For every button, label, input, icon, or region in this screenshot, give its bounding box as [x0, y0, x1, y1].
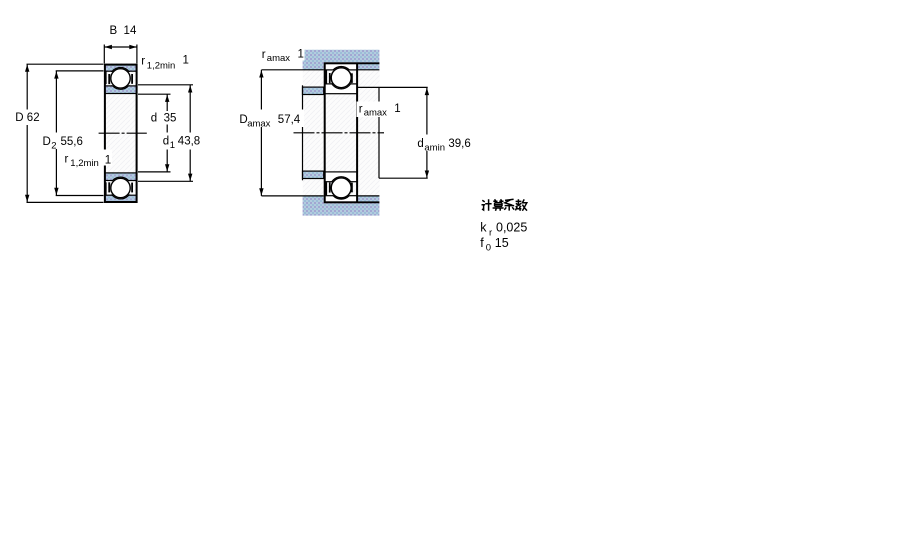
svg-text:D 62: D 62: [15, 112, 39, 124]
svg-text:15: 15: [495, 236, 509, 250]
svg-text:amax: amax: [267, 53, 290, 64]
svg-text:f: f: [480, 236, 484, 250]
svg-text:k: k: [480, 221, 487, 235]
svg-text:43,8: 43,8: [178, 136, 200, 148]
svg-text:d: d: [163, 136, 169, 148]
svg-text:r: r: [359, 103, 363, 115]
svg-text:1: 1: [298, 49, 304, 61]
svg-text:1: 1: [183, 55, 189, 67]
svg-text:r: r: [65, 153, 69, 165]
svg-text:r: r: [262, 49, 266, 61]
svg-text:1: 1: [170, 140, 175, 151]
svg-text:amax: amax: [364, 108, 387, 119]
svg-text:amax: amax: [247, 118, 270, 129]
svg-text:1: 1: [105, 155, 111, 167]
svg-text:1,2min: 1,2min: [70, 158, 99, 169]
svg-text:57,4: 57,4: [278, 114, 301, 126]
svg-text:39,6: 39,6: [448, 138, 470, 150]
svg-text:2: 2: [51, 141, 56, 152]
svg-text:r: r: [489, 228, 492, 239]
svg-text:D: D: [43, 136, 51, 148]
svg-text:r: r: [141, 55, 145, 67]
svg-text:55,6: 55,6: [61, 136, 83, 148]
svg-text:amin: amin: [424, 142, 445, 153]
svg-text:1: 1: [394, 103, 400, 115]
svg-text:d: d: [417, 138, 423, 150]
svg-text:0: 0: [486, 243, 491, 254]
svg-text:d 35: d 35: [151, 113, 177, 125]
svg-text:0,025: 0,025: [496, 221, 527, 235]
svg-text:B 14: B 14: [110, 25, 137, 37]
svg-text:1,2min: 1,2min: [147, 61, 176, 72]
